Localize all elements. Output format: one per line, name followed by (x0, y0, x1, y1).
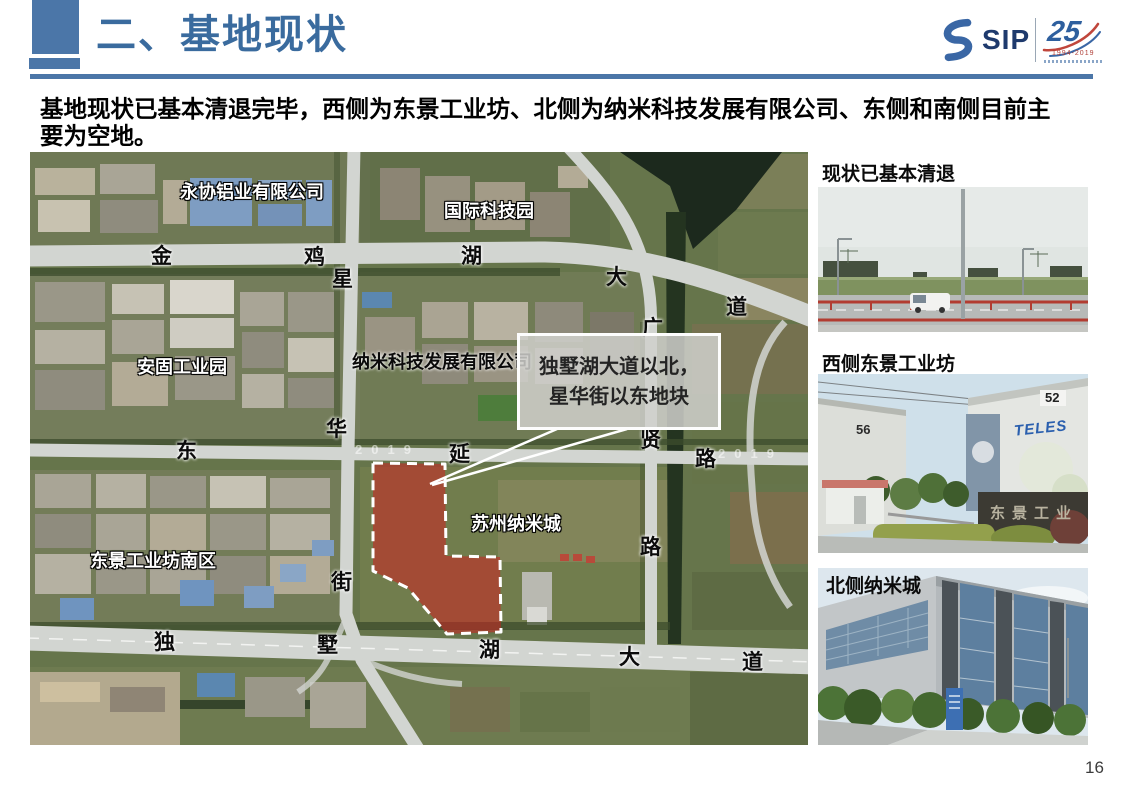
sip-s-swoosh-icon (936, 18, 980, 62)
site-callout: 独墅湖大道以北， 星华街以东地块 (517, 333, 721, 430)
header-underline (30, 74, 1093, 79)
photo2-gate-sign: 东景工业 (990, 502, 1078, 523)
intro-paragraph: 基地现状已基本清退完毕，西侧为东景工业坊、北侧为纳米科技发展有限公司、东侧和南侧… (40, 96, 1060, 150)
satellite-map: 金 鸡 湖 大 道 星 华 街 东 延 路 广 贤 路 独 墅 湖 大 道 永协… (30, 152, 808, 745)
sip-logo-text: SIP (982, 24, 1030, 56)
anniversary-microtext-bar (1044, 60, 1102, 63)
photo-nanocity: 北侧纳米城 (818, 568, 1088, 745)
callout-line1: 独墅湖大道以北， (520, 352, 718, 382)
photo-dongjing-park: 56 52 TELES 东景工业 (818, 374, 1088, 553)
title-marker-bar (29, 58, 80, 69)
logo-divider (1035, 18, 1036, 62)
page-number: 16 (1085, 758, 1104, 778)
anniversary-years: 1994-2019 (1052, 50, 1094, 57)
photo2-building-56: 56 (856, 422, 870, 437)
photo1-caption: 现状已基本清退 (822, 159, 955, 186)
anniversary-number: 25 (1046, 16, 1083, 49)
photo2-building-52: 52 (1045, 390, 1059, 405)
callout-line2: 星华街以东地块 (520, 382, 718, 412)
site-boundary-overlay (30, 152, 808, 745)
photo2-caption: 西侧东景工业坊 (822, 349, 955, 376)
photo-cleared-site (818, 187, 1088, 332)
slide: 二、基地现状 SIP 25 1994-2019 基地现状已基本清退完毕，西侧为东… (0, 0, 1123, 794)
slide-title: 二、基地现状 (96, 2, 348, 60)
title-marker-square (32, 0, 79, 54)
van (910, 293, 950, 313)
photo1-art (818, 187, 1088, 332)
sip-logo: SIP 25 1994-2019 (936, 14, 1106, 72)
photo3-caption: 北侧纳米城 (826, 571, 921, 598)
site-boundary-polygon (373, 463, 501, 634)
callout-pointer (430, 429, 627, 485)
